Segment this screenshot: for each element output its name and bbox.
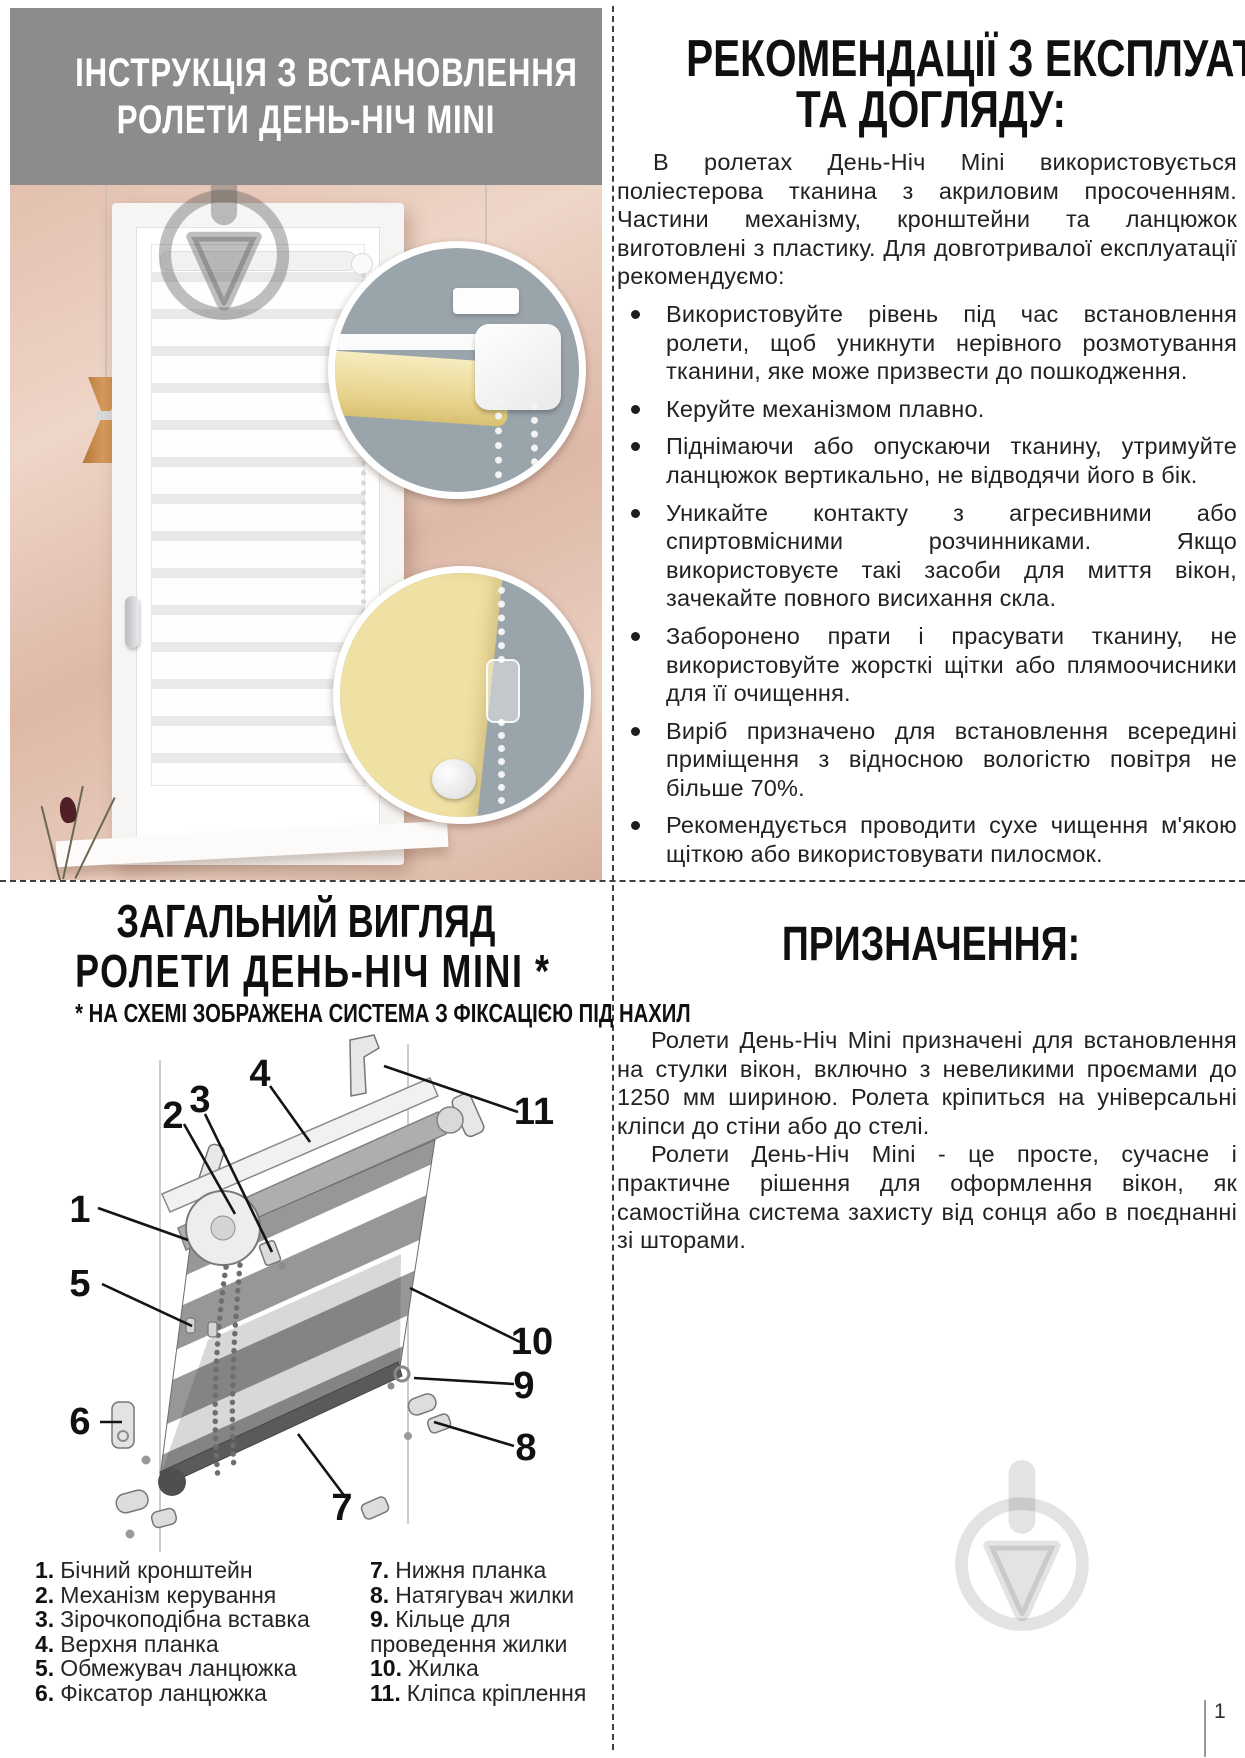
legend-item: 6.Фіксатор ланцюжка <box>35 1681 355 1706</box>
vertical-cut-line <box>612 6 614 1750</box>
brand-watermark-icon <box>938 1456 1106 1642</box>
diagram-label-10: 10 <box>511 1321 553 1363</box>
purpose-title: ПРИЗНАЧЕННЯ: <box>617 920 1245 970</box>
install-header-banner: ІНСТРУКЦІЯ З ВСТАНОВЛЕННЯ РОЛЕТИ ДЕНЬ-НІ… <box>10 8 602 185</box>
overview-title-line1: ЗАГАЛЬНИЙ ВИГЛЯД <box>75 896 537 946</box>
purpose-paragraph-1: Ролети День-Ніч Mini призначені для вста… <box>617 1026 1237 1140</box>
care-bullet: Виріб призначено для встановлення всеред… <box>617 717 1237 803</box>
tulip-flower <box>58 796 77 824</box>
chain-fixator <box>486 659 520 723</box>
overview-title-line2: РОЛЕТИ ДЕНЬ-НІЧ MINI * <box>75 946 537 996</box>
install-header-line1: ІНСТРУКЦІЯ З ВСТАНОВЛЕННЯ <box>75 50 537 97</box>
bead-chain <box>498 573 505 663</box>
bead-chain <box>498 719 505 804</box>
window-blind-photo <box>10 185 602 880</box>
fitting-bolt <box>150 1507 177 1529</box>
diagram-label-9: 9 <box>513 1365 534 1407</box>
care-bullet: Рекомендується проводити сухе чищення м'… <box>617 811 1237 868</box>
diagram-label-8: 8 <box>515 1427 536 1469</box>
legend-item: 1.Бічний кронштейн <box>35 1558 355 1583</box>
diagram-label-2: 2 <box>162 1095 183 1137</box>
tensioner <box>432 759 476 799</box>
page-number-rule <box>1204 1700 1206 1757</box>
diagram-label-1: 1 <box>69 1189 90 1231</box>
window-handle-icon <box>125 596 139 648</box>
legend-item: 9.Кільце для проведення жилки <box>370 1607 620 1656</box>
care-title: РЕКОМЕНДАЦІЇ З ЕКСПЛУАТАЦІЇ ТА ДОГЛЯДУ: <box>617 34 1245 136</box>
bullet-dot-icon <box>631 632 640 641</box>
purpose-section: ПРИЗНАЧЕННЯ: Ролети День-Ніч Mini призна… <box>617 920 1245 1255</box>
legend-column-right: 7.Нижня планка 8.Натягувач жилки 9.Кільц… <box>370 1558 620 1706</box>
legend-item: 7.Нижня планка <box>370 1558 620 1583</box>
diagram-label-5: 5 <box>69 1263 90 1305</box>
fabric-yellow <box>333 566 503 824</box>
screw <box>404 1432 412 1440</box>
legend-item: 3.Зірочкоподібна вставка <box>35 1607 355 1632</box>
mechanism-hub <box>211 1216 235 1240</box>
screw <box>142 1456 151 1465</box>
page-number: 1 <box>1214 1700 1226 1724</box>
instruction-page: ІНСТРУКЦІЯ З ВСТАНОВЛЕННЯ РОЛЕТИ ДЕНЬ-НІ… <box>0 0 1245 1758</box>
roll-end-cap <box>437 1107 463 1133</box>
install-header-line2: РОЛЕТИ ДЕНЬ-НІЧ MINI <box>75 97 537 144</box>
bottom-bar-cap <box>158 1468 186 1496</box>
care-title-line2: ТА ДОГЛЯДУ: <box>686 85 1176 136</box>
bullet-dot-icon <box>631 405 640 414</box>
fitting-cylinder <box>114 1488 150 1515</box>
diagram-label-6: 6 <box>69 1401 90 1443</box>
legend-item: 11.Кліпса кріплення <box>370 1681 620 1706</box>
diagram-label-4: 4 <box>249 1053 270 1095</box>
legend-item: 10.Жилка <box>370 1656 620 1681</box>
mechanism-callout <box>328 241 586 499</box>
fitting-bracket <box>360 1495 390 1520</box>
wire-tensioner-part <box>406 1392 438 1418</box>
bullet-dot-icon <box>631 727 640 736</box>
screw <box>126 1530 135 1539</box>
legend-item: 2.Механізм керування <box>35 1583 355 1608</box>
brand-watermark-icon <box>142 185 306 331</box>
overview-title: ЗАГАЛЬНИЙ ВИГЛЯД РОЛЕТИ ДЕНЬ-НІЧ MINI * … <box>10 896 602 1028</box>
diagram-label-7: 7 <box>331 1487 352 1529</box>
care-bullet: Заборонено прати і прасувати тканину, не… <box>617 622 1237 708</box>
blind-mechanism-knob <box>351 253 373 275</box>
legend-item: 4.Верхня планка <box>35 1632 355 1657</box>
purpose-paragraph-2: Ролети День-Ніч Mini - це просте, сучасн… <box>617 1140 1237 1254</box>
mount-clip <box>453 288 519 314</box>
bullet-dot-icon <box>631 509 640 518</box>
chain-limiter <box>208 1322 217 1337</box>
care-section: РЕКОМЕНДАЦІЇ З ЕКСПЛУАТАЦІЇ ТА ДОГЛЯДУ: … <box>617 0 1245 869</box>
care-title-line1: РЕКОМЕНДАЦІЇ З ЕКСПЛУАТАЦІЇ <box>686 34 1176 85</box>
bullet-dot-icon <box>631 821 640 830</box>
clip-part <box>350 1035 379 1096</box>
bullet-dot-icon <box>631 310 640 319</box>
screw <box>279 1263 286 1270</box>
care-bullet: Використовуйте рівень під час встановлен… <box>617 300 1237 386</box>
screw <box>388 1383 395 1390</box>
care-intro-paragraph: В ролетах День-Ніч Mini використовується… <box>617 148 1237 291</box>
horizontal-cut-line <box>0 880 1245 882</box>
legend-item: 8.Натягувач жилки <box>370 1583 620 1608</box>
blind-exploded-diagram: 1 2 3 4 5 6 7 8 9 10 11 <box>10 1032 580 1557</box>
legend-column-left: 1.Бічний кронштейн 2.Механізм керування … <box>35 1558 355 1706</box>
care-bullet: Уникайте контакту з агресивними або спир… <box>617 499 1237 613</box>
bead-chain <box>531 403 538 493</box>
legend-item: 5.Обмежувач ланцюжка <box>35 1656 355 1681</box>
lamp-cord <box>105 185 107 381</box>
control-mechanism <box>475 324 561 410</box>
care-bullet: Піднімаючи або опускаючи тканину, утриму… <box>617 432 1237 489</box>
care-bullet: Керуйте механізмом плавно. <box>617 395 1237 424</box>
diagram-label-3: 3 <box>189 1079 210 1121</box>
bullet-dot-icon <box>631 442 640 451</box>
bead-chain <box>495 398 502 493</box>
chain-fixator-callout <box>333 566 591 824</box>
overview-subtitle: * НА СХЕМІ ЗОБРАЖЕНА СИСТЕМА З ФІКСАЦІЄЮ… <box>75 998 537 1028</box>
diagram-label-11: 11 <box>514 1091 554 1133</box>
